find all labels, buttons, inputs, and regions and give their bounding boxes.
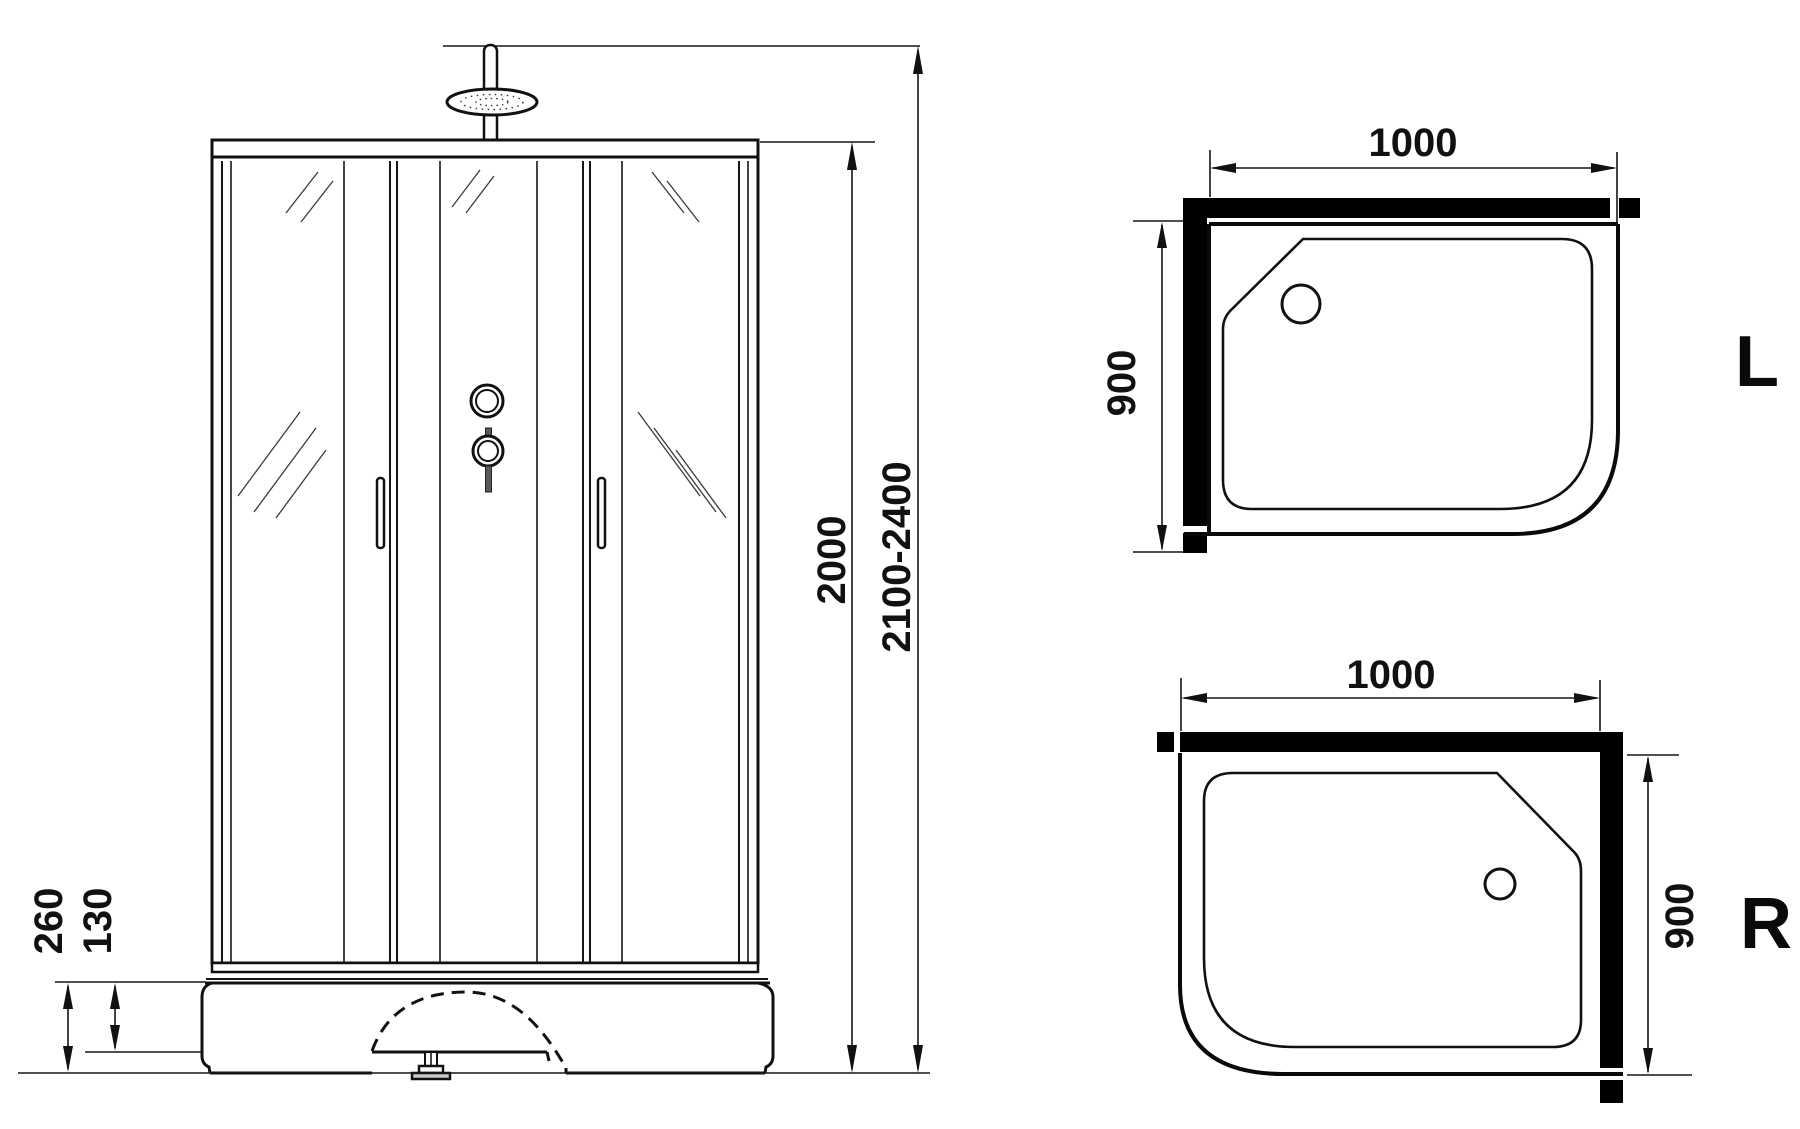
dim-label-base-height: 260	[27, 888, 71, 955]
r-right-wall-endcap	[1600, 1080, 1623, 1103]
dim-label-tray-height: 130	[76, 888, 120, 955]
door-handle-left	[377, 478, 384, 548]
r-dim-label-depth: 900	[1658, 883, 1702, 950]
door-handle-right	[598, 478, 605, 548]
top-view-left-version: 1000 900 L	[1100, 121, 1779, 553]
l-tray-outer-outline	[1184, 224, 1618, 534]
technical-drawing-canvas: 260 130 2000 2100-2400	[0, 0, 1800, 1129]
r-dim-label-width: 1000	[1347, 653, 1436, 697]
mixer-knob-upper-icon	[471, 385, 503, 417]
dim-label-total-height: 2100-2400	[875, 461, 919, 652]
r-tray-inner-rim	[1204, 773, 1581, 1047]
front-view: 260 130 2000 2100-2400	[18, 45, 930, 1079]
adjustable-foot-icon	[412, 1052, 450, 1079]
dimension-cabin-height: 2000	[810, 142, 857, 1073]
top-frame-bar	[212, 140, 758, 157]
shower-tray-profile	[202, 983, 773, 1079]
l-dimension-depth: 900	[1100, 221, 1183, 552]
top-view-right-version: 1000 900 R	[1157, 653, 1792, 1103]
l-left-wall	[1183, 218, 1207, 526]
l-top-wall-endcap	[1619, 198, 1640, 218]
bottom-frame-bar	[212, 963, 758, 972]
l-tray-inner-rim	[1223, 239, 1592, 509]
r-top-wall-endcap	[1157, 732, 1174, 752]
apron-dashed-arc	[372, 992, 566, 1068]
l-dim-label-depth: 900	[1100, 350, 1144, 417]
r-version-label: R	[1740, 884, 1792, 964]
l-top-wall	[1183, 198, 1610, 218]
shower-head-icon	[447, 89, 537, 115]
cabin-body-outline	[212, 157, 758, 963]
r-dimension-depth: 900	[1627, 755, 1702, 1075]
dim-label-cabin-height: 2000	[810, 516, 854, 605]
drawing-svg: 260 130 2000 2100-2400	[0, 0, 1800, 1129]
l-version-label: L	[1735, 322, 1779, 402]
r-dimension-width: 1000	[1181, 653, 1600, 731]
dimension-total-height: 2100-2400	[875, 46, 923, 1073]
l-drain-icon	[1282, 285, 1320, 323]
r-drain-icon	[1485, 869, 1515, 899]
dimension-tray-height: 130	[76, 888, 120, 1051]
r-right-wall	[1600, 752, 1623, 1068]
r-top-wall	[1180, 732, 1623, 752]
dimension-base-height: 260	[27, 888, 73, 1072]
l-dim-label-width: 1000	[1369, 121, 1458, 165]
r-tray-outer-outline	[1180, 753, 1623, 1074]
